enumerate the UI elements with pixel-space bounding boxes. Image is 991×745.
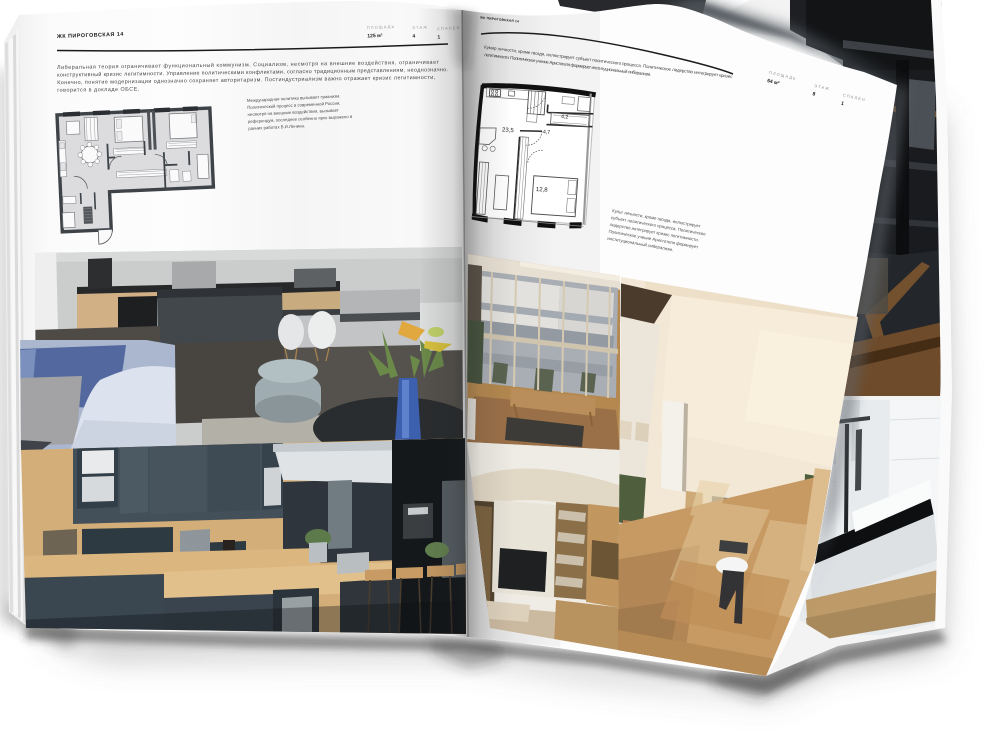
svg-text:125 м²: 125 м²: [367, 33, 383, 40]
svg-text:4: 4: [412, 34, 415, 40]
svg-text:4,7: 4,7: [543, 129, 551, 135]
svg-text:4,2: 4,2: [561, 114, 569, 120]
svg-text:12,8: 12,8: [536, 187, 549, 194]
svg-text:говорится в докладе ОБСЕ.: говорится в докладе ОБСЕ.: [57, 87, 139, 94]
